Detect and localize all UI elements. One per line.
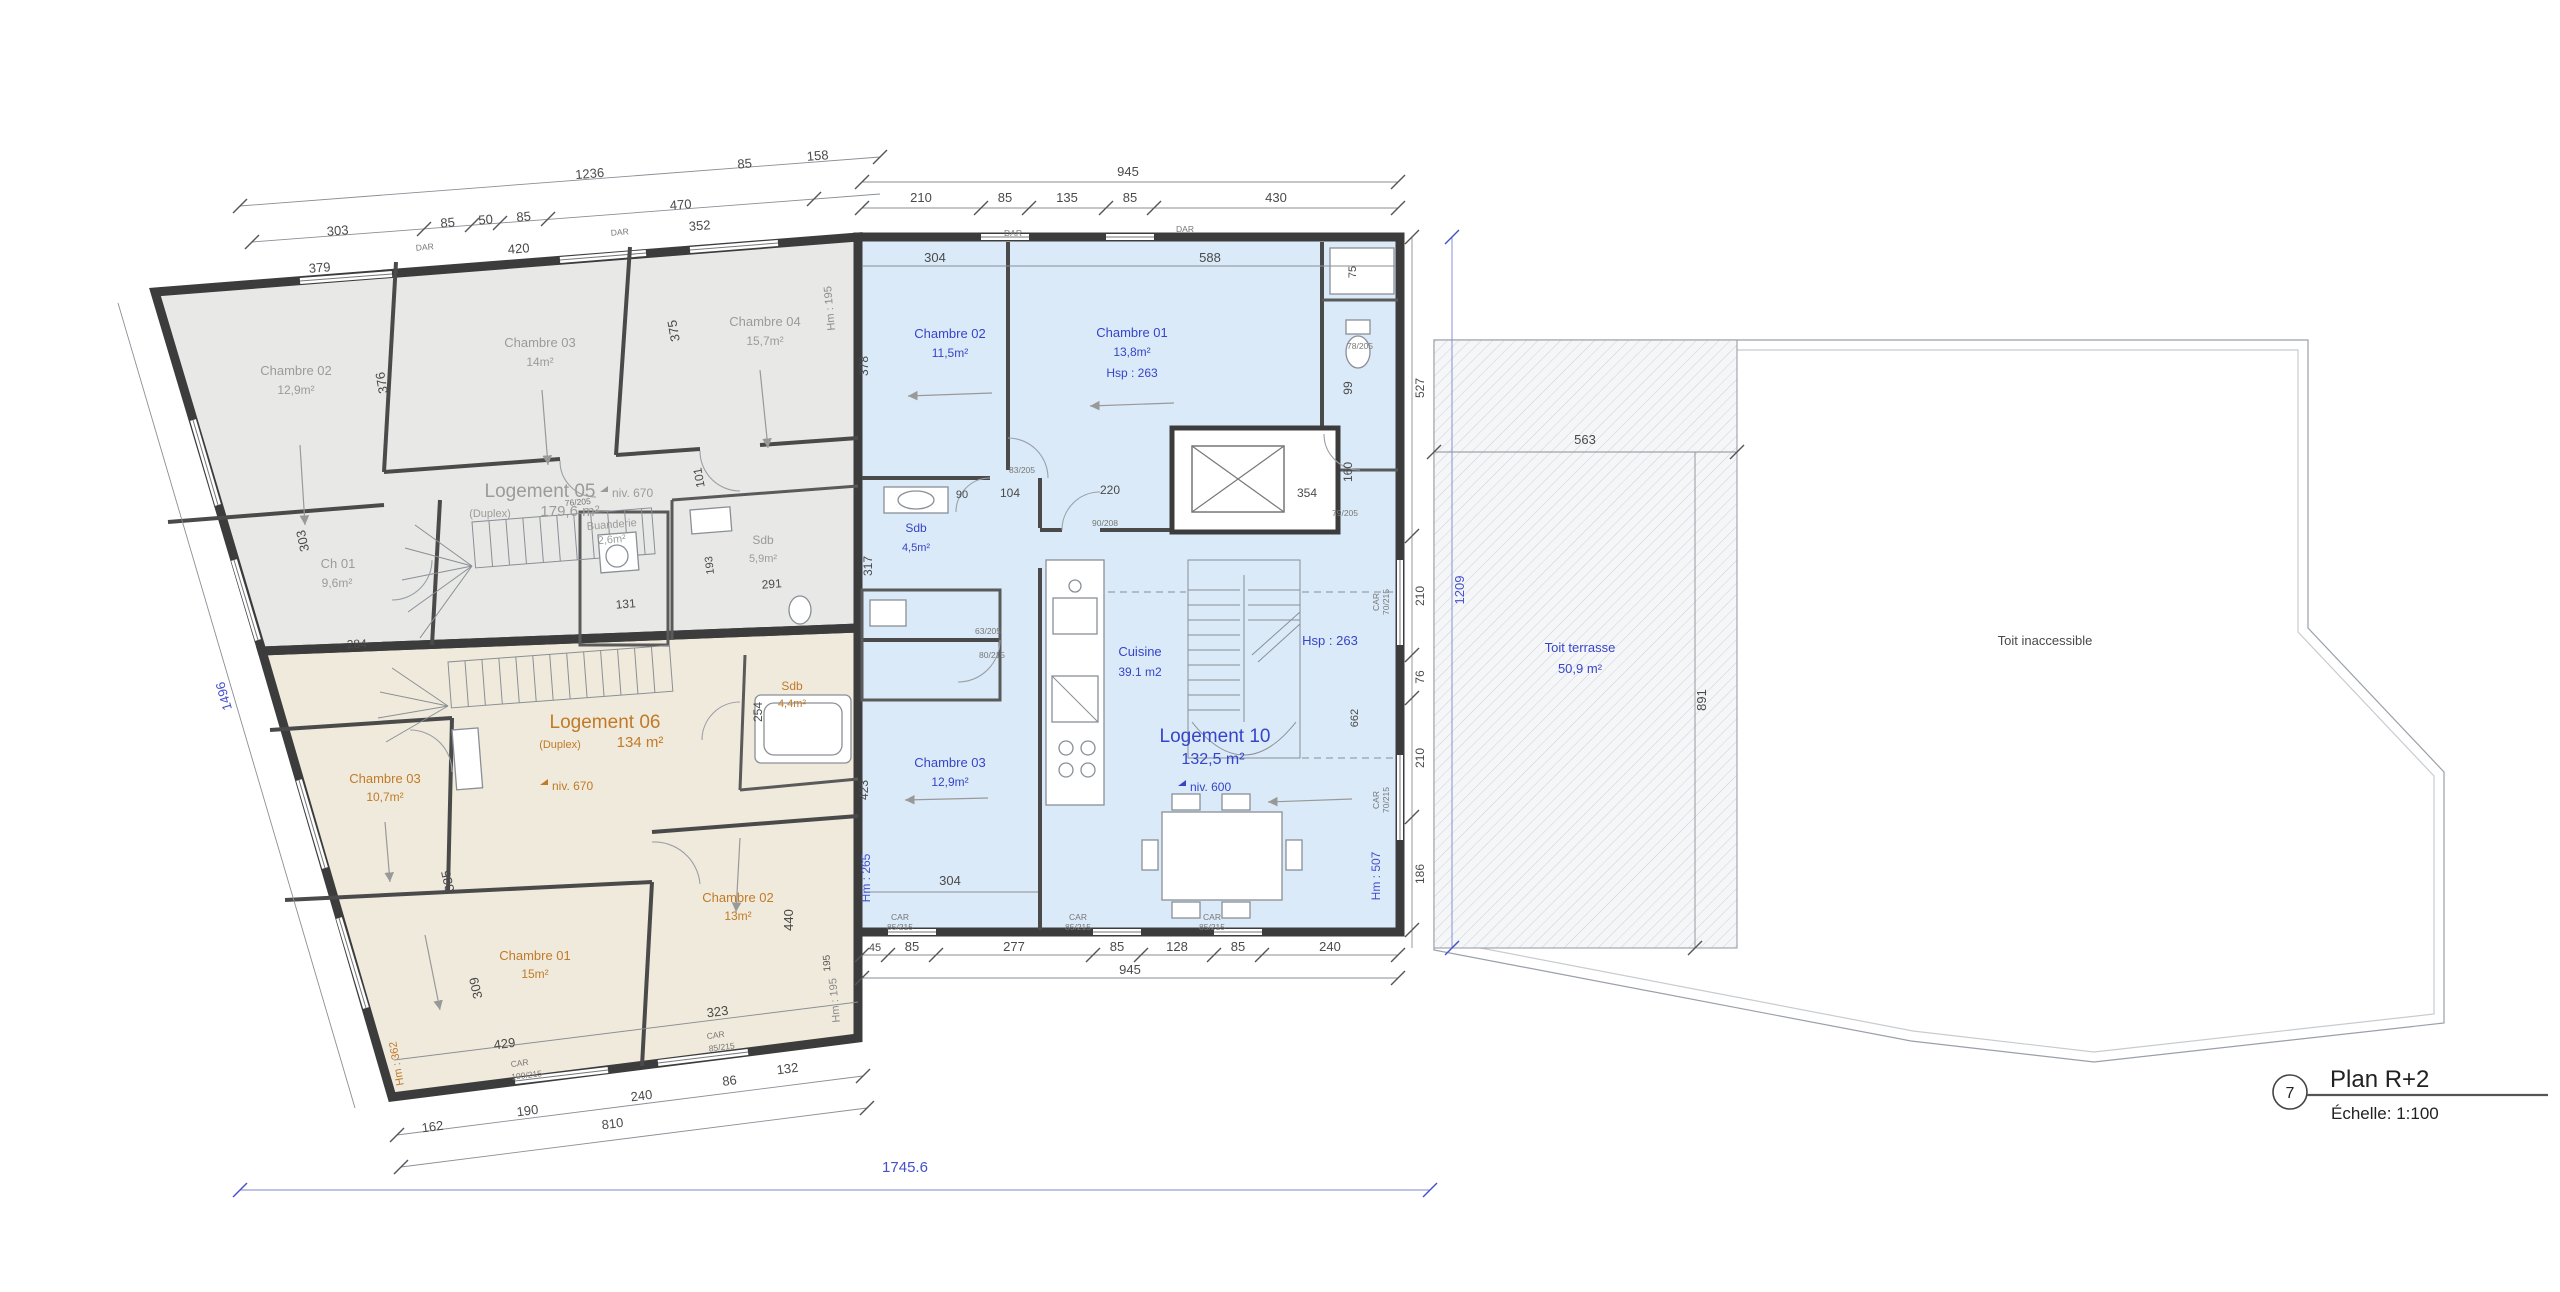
dim: 220 [1100, 483, 1120, 497]
dim: 75 [1347, 266, 1359, 278]
room-name: Chambre 03 [349, 771, 421, 786]
dim: 240 [630, 1087, 653, 1105]
room-area: 12,9m² [277, 383, 314, 397]
dim: 945 [1117, 164, 1139, 179]
kitchen-counter [1046, 560, 1104, 805]
room-area: 4,5m² [902, 542, 930, 554]
dim: 379 [308, 259, 331, 276]
apartment-name: Logement 10 [1160, 726, 1271, 747]
window-tag: 85/215 [887, 922, 913, 932]
terrace-area: 50,9 m² [1558, 661, 1603, 676]
dim: 85 [998, 190, 1012, 205]
dim: 210 [910, 190, 932, 205]
apartment-area: 132,5 m² [1181, 751, 1245, 768]
room-area: 15,7m² [746, 334, 783, 348]
window-tag: 85/215 [1065, 922, 1091, 932]
room-name: Sdb [781, 679, 803, 693]
room-name: Sdb [752, 533, 774, 547]
plan-title: Plan R+2 [2330, 1066, 2429, 1093]
dim: 85 [1231, 939, 1245, 954]
dim: 85 [905, 939, 919, 954]
window-tag: CAR [1203, 912, 1221, 922]
dim: 85 [1110, 939, 1124, 954]
dim: 429 [493, 1035, 516, 1053]
room-name: Ch 01 [321, 556, 356, 571]
height-note: Hm : 265 [859, 853, 873, 902]
room-name: Chambre 01 [499, 948, 571, 963]
dim: 1209 [1452, 576, 1467, 605]
apartment-name: Logement 06 [550, 712, 661, 733]
dim: 240 [1319, 939, 1341, 954]
dim: 85 [737, 155, 753, 171]
title-block: 7 Plan R+2 Échelle: 1:100 [2273, 1066, 2548, 1123]
room-area: 13m² [724, 909, 751, 923]
dim: 85 [516, 208, 532, 224]
room-name: Chambre 02 [914, 326, 986, 341]
door-tag: 83/205 [1009, 465, 1035, 475]
dim: 90 [956, 489, 968, 501]
apartment-type: (Duplex) [539, 739, 581, 751]
window-tag: 85/215 [1199, 922, 1225, 932]
dim: 186 [1413, 864, 1427, 884]
dim: 128 [1166, 939, 1188, 954]
room-area: 4,4m² [778, 698, 806, 710]
window-tag: DAR [610, 226, 629, 237]
room-area: 15m² [521, 967, 548, 981]
dim: 810 [601, 1115, 624, 1133]
dim: 354 [1297, 486, 1317, 500]
window-tag: 70/215 [1381, 787, 1391, 813]
window-tag: 70/215 [1381, 589, 1391, 615]
dim: 193 [703, 556, 717, 576]
dim: 423 [857, 780, 871, 800]
dining-table [1142, 794, 1302, 918]
dim: 891 [1694, 689, 1709, 711]
dim: 132 [776, 1060, 799, 1078]
door-tag: 76/205 [564, 496, 591, 508]
dim: 50 [478, 211, 494, 227]
room-area: 10,7m² [366, 790, 403, 804]
room-name: Chambre 04 [729, 314, 801, 329]
dim: 131 [615, 596, 636, 612]
window-tag: CAR [891, 912, 909, 922]
apartment-type: (Duplex) [469, 508, 511, 520]
terrace-label: Toit terrasse [1545, 640, 1616, 655]
room-name: Chambre 03 [504, 335, 576, 350]
dim: 190 [516, 1102, 539, 1120]
apartment-area: 134 m² [617, 734, 664, 751]
dim: 945 [1119, 962, 1141, 977]
dim: 210 [1413, 586, 1427, 606]
room-name: Chambre 01 [1096, 325, 1168, 340]
dim: 86 [721, 1072, 737, 1089]
dim: 76 [1413, 670, 1427, 684]
door-tag: 80/215 [979, 650, 1005, 660]
window-tag: DAR [1176, 224, 1194, 234]
dim: 304 [924, 250, 946, 265]
dim: 85 [440, 214, 456, 230]
window-tag: CAR [1069, 912, 1087, 922]
dim-overall-bottom: 1745.6 [882, 1159, 928, 1176]
dim: 158 [806, 147, 829, 164]
dim: 527 [1413, 378, 1427, 398]
dim: 210 [1413, 748, 1427, 768]
floor-plan-drawing: Toit terrasse 50,9 m² Toit inaccessible [0, 0, 2560, 1292]
window-tag: DAR [1004, 228, 1022, 238]
dim: 99 [1341, 381, 1355, 395]
floor-plan-page: Toit terrasse 50,9 m² Toit inaccessible [0, 0, 2560, 1292]
dim: 291 [761, 576, 782, 592]
door-tag: 78/205 [1347, 341, 1373, 351]
dim: 470 [669, 196, 692, 213]
room-area: 14m² [526, 355, 553, 369]
window-tag: CAR [1371, 593, 1381, 611]
dim: 378 [857, 356, 871, 376]
logement05-footprint [155, 237, 858, 651]
room-area: 39.1 m2 [1118, 665, 1162, 679]
ceiling-height: Hsp : 263 [1106, 366, 1158, 380]
door-tag: 90/208 [1092, 518, 1118, 528]
room-name: Chambre 03 [914, 755, 986, 770]
dim: 195 [822, 954, 834, 972]
room-area: 12,9m² [931, 775, 968, 789]
dim: 304 [939, 873, 961, 888]
door-tag: 79/205 [1332, 508, 1358, 518]
room-name: Chambre 02 [702, 890, 774, 905]
level-note: niv. 600 [1190, 780, 1231, 794]
room-name: Chambre 02 [260, 363, 332, 378]
room-area: 13,8m² [1113, 345, 1150, 359]
plan-scale: Échelle: 1:100 [2331, 1104, 2439, 1123]
level-note: niv. 670 [552, 779, 593, 793]
dim: 284 [346, 636, 367, 651]
dim: 45 [869, 942, 881, 954]
dim: 160 [1341, 462, 1355, 482]
dim: 254 [751, 702, 765, 722]
dim: 162 [421, 1118, 444, 1136]
dim: 1236 [575, 165, 605, 182]
dim: 588 [1199, 250, 1221, 265]
dim: 104 [1000, 486, 1020, 500]
dim: 420 [507, 240, 530, 257]
door-tag: 63/205 [975, 626, 1001, 636]
dim: 303 [326, 222, 349, 239]
room-area: 11,5m² [932, 346, 968, 360]
dim: 317 [861, 556, 875, 576]
elevator-shaft [1172, 428, 1338, 532]
dim: 85 [1123, 190, 1137, 205]
dim: 135 [1056, 190, 1078, 205]
room-name: Cuisine [1118, 644, 1161, 659]
height-note: Hm : 507 [1369, 851, 1383, 900]
dim: 323 [706, 1003, 729, 1021]
dim: 277 [1003, 939, 1025, 954]
room-area: 9,6m² [322, 576, 353, 590]
roof-inaccessible-label: Toit inaccessible [1998, 633, 2093, 648]
dim: 440 [781, 909, 796, 931]
dim-overall-left: 1496 [212, 680, 234, 712]
window-tag: CAR [1371, 791, 1381, 809]
dim: 352 [688, 217, 711, 234]
room-area: 5,9m² [749, 553, 777, 565]
dim: 430 [1265, 190, 1287, 205]
room-area: 2,6m² [597, 533, 626, 547]
ceiling-height: Hsp : 263 [1302, 633, 1358, 648]
dim: 662 [1349, 709, 1361, 727]
window-tag: DAR [415, 241, 434, 252]
logement10-footprint [858, 237, 1400, 932]
level-note: niv. 670 [612, 486, 653, 500]
plan-number: 7 [2286, 1085, 2295, 1102]
room-name: Sdb [905, 521, 927, 535]
dim: 563 [1574, 432, 1596, 447]
